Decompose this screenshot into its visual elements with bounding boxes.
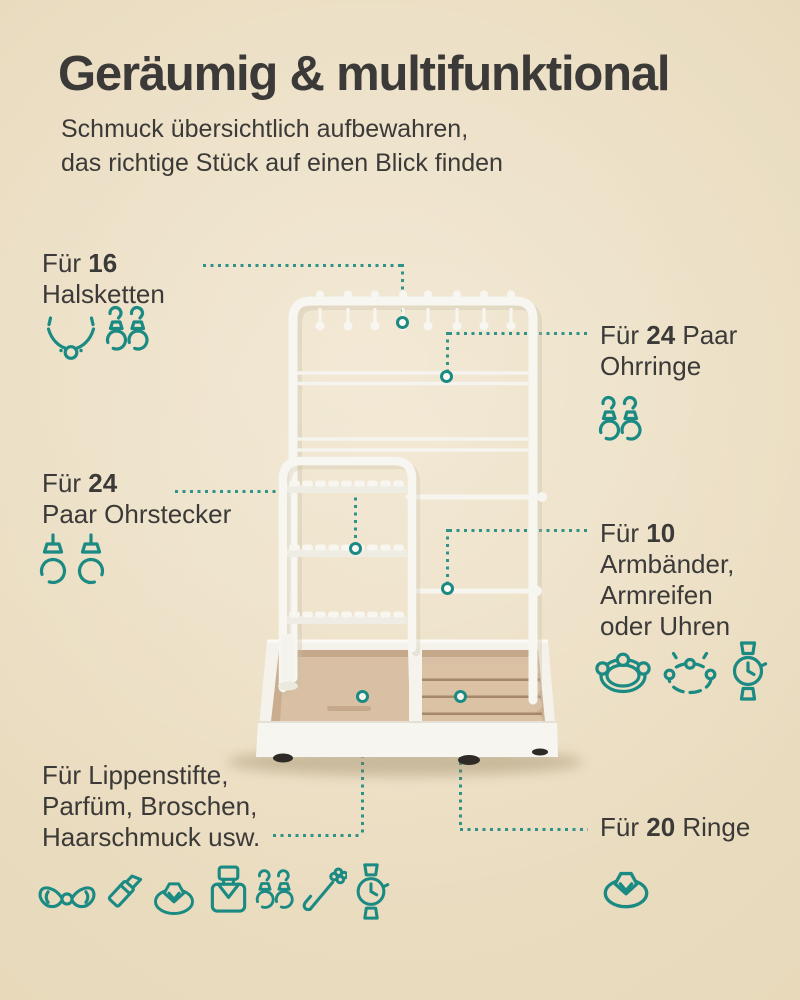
page-title: Geräumig & multifunktional (58, 46, 669, 102)
callout-node-bracelets (441, 582, 454, 595)
stud-frame-post-sleeve (281, 634, 294, 682)
hairpin-icon (301, 864, 347, 918)
ring-icon (148, 870, 200, 920)
bangle-icon (659, 646, 721, 700)
velvet-compartment-right (420, 650, 545, 726)
earring-bars (297, 373, 529, 450)
watch-icon (727, 640, 769, 702)
callout-bracelets: Für 10 Armbänder, Armreifen oder Uhren (600, 518, 734, 642)
callout-node-accessories (356, 690, 369, 703)
callout-studs: Für 24 Paar Ohrstecker (42, 468, 231, 530)
page-subtitle: Schmuck übersichtlich aufbewahren, das r… (61, 112, 503, 180)
callout-rings: Für 20 Ringe (600, 812, 750, 843)
subtitle-line-2: das richtige Stück auf einen Blick finde… (61, 146, 503, 180)
callout-earrings: Für 24 Paar Ohrringe (600, 320, 737, 382)
callout-node-necklaces (396, 316, 409, 329)
stud-earrings-pair-icon (36, 532, 108, 598)
callout-node-studs (349, 542, 362, 555)
callout-node-rings (454, 690, 467, 703)
lipstick-icon (97, 866, 149, 918)
stud-frame-foot (278, 682, 298, 691)
tray-front-face (256, 722, 558, 757)
callout-necklaces: Für 16 Halsketten (42, 248, 165, 310)
bracelet-bars (408, 492, 547, 596)
subtitle-line-1: Schmuck übersichtlich aufbewahren, (61, 112, 503, 146)
callout-accessories: Für Lippenstifte, Parfüm, Broschen, Haar… (42, 760, 260, 853)
earrings-pair-icon (597, 390, 643, 452)
bracelet-icon (592, 644, 654, 698)
bow-icon (36, 878, 98, 920)
stud-peg-strips (287, 484, 407, 625)
perfume-icon (206, 864, 251, 921)
callout-node-earrings (440, 370, 453, 383)
watch-icon (351, 862, 391, 921)
tray-divider (409, 646, 422, 722)
ring-icon (597, 858, 655, 914)
earrings-pair-icon (254, 864, 295, 919)
tray-imprint (327, 706, 371, 711)
necklace-icon (40, 310, 102, 366)
